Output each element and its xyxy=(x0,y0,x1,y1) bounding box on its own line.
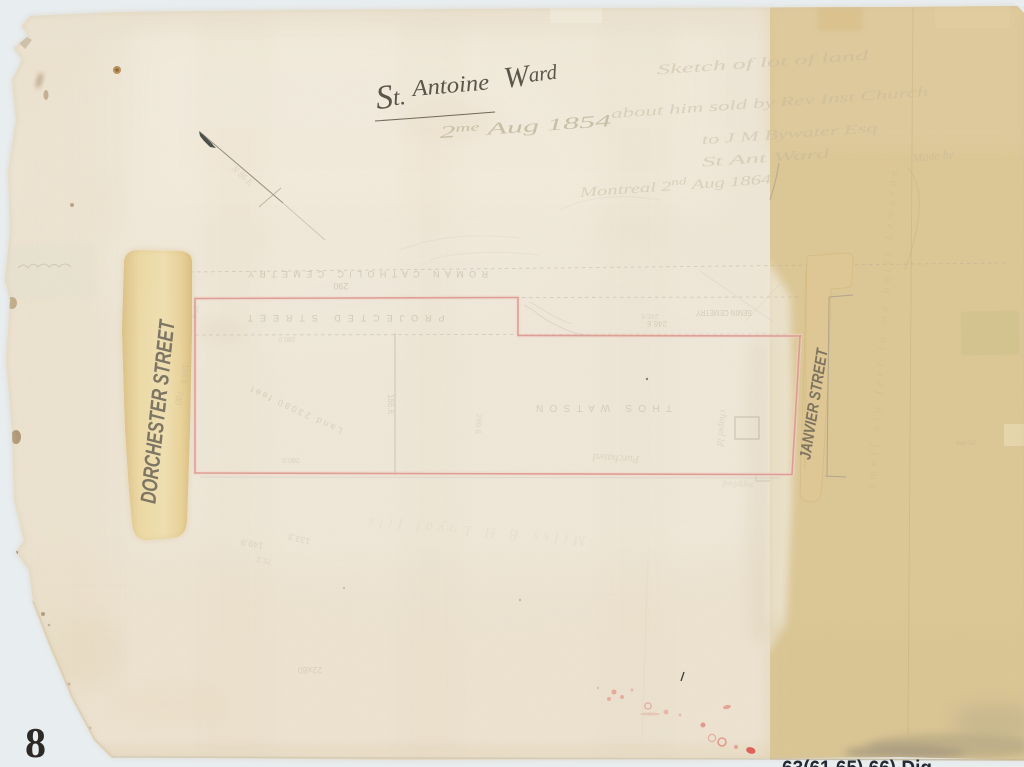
svg-text:63(61 65) 66) Dig: 63(61 65) 66) Dig xyxy=(782,757,932,767)
svg-text:180.0: 180.0 xyxy=(278,335,296,342)
svg-text:290: 290 xyxy=(333,281,348,291)
svg-text:280.0: 280.0 xyxy=(282,456,300,463)
svg-text:269.6: 269.6 xyxy=(473,413,484,434)
svg-text:SEMIN CEMETRY: SEMIN CEMETRY xyxy=(695,308,752,317)
svg-text:8: 8 xyxy=(25,721,46,767)
svg-text:246.6: 246.6 xyxy=(646,319,667,328)
svg-text:186.6: 186.6 xyxy=(386,394,395,415)
svg-text:246.6: 246.6 xyxy=(641,312,659,319)
svg-text:min hil: min hil xyxy=(956,439,976,447)
svg-text:Purchased: Purchased xyxy=(592,451,641,466)
svg-text:22x80: 22x80 xyxy=(298,665,323,675)
